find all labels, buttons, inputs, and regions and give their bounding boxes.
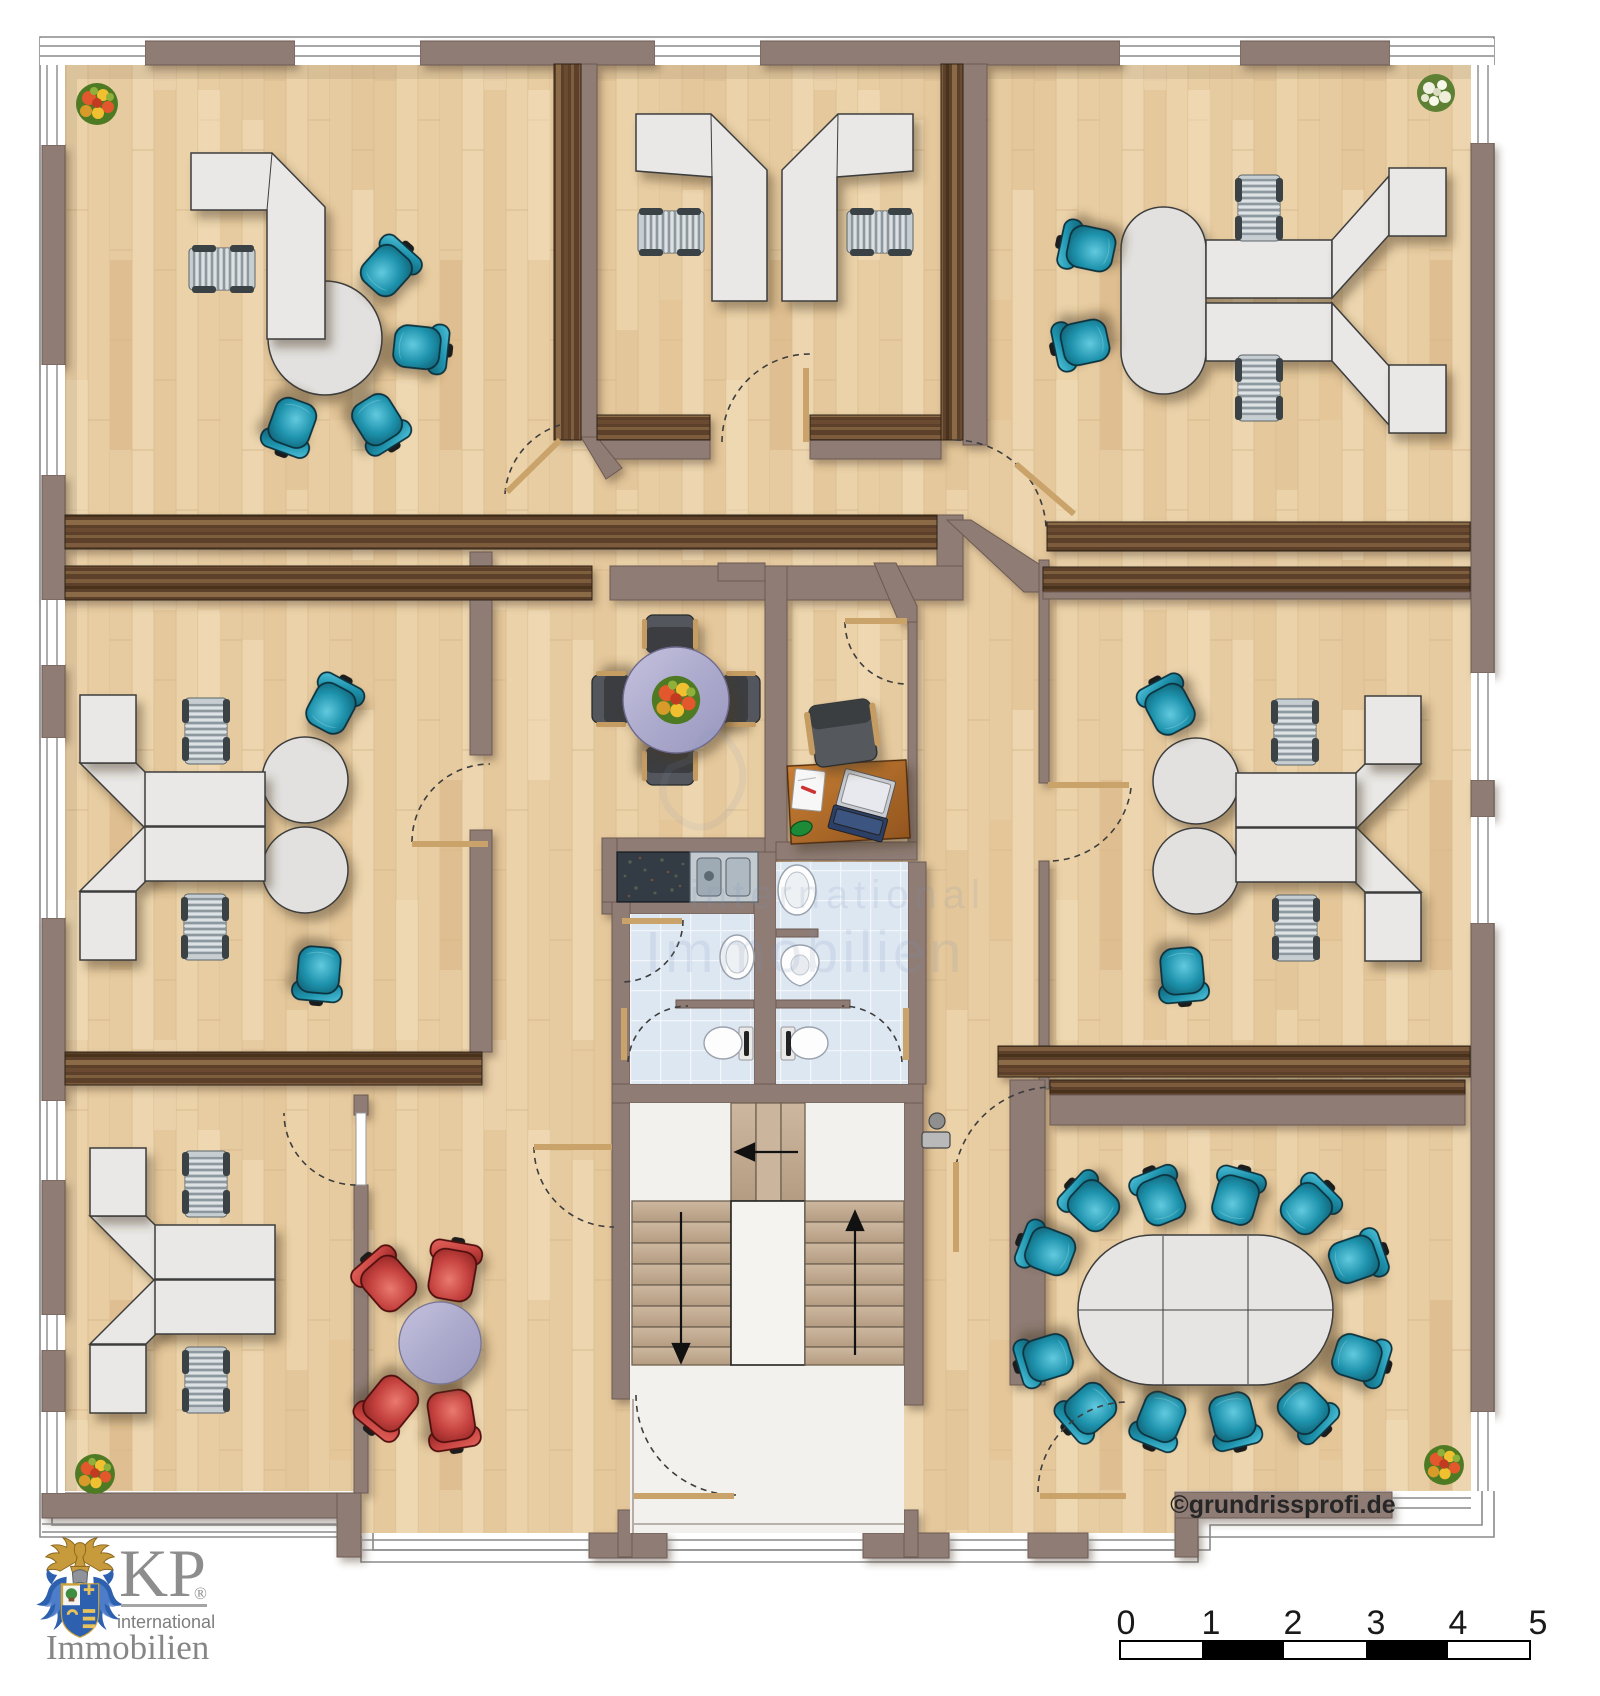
svg-text:®: ®: [194, 1584, 207, 1603]
svg-text:Immobilien: Immobilien: [46, 1628, 209, 1667]
svg-text:©grundrissprofi.de: ©grundrissprofi.de: [1170, 1491, 1395, 1519]
svg-text:2: 2: [1284, 1604, 1303, 1642]
svg-text:KP: KP: [119, 1535, 206, 1611]
svg-text:0: 0: [1117, 1604, 1136, 1642]
svg-text:international: international: [690, 873, 986, 917]
svg-text:3: 3: [1367, 1604, 1386, 1642]
svg-text:Immobilien: Immobilien: [645, 920, 965, 985]
svg-text:5: 5: [1529, 1604, 1548, 1642]
svg-text:1: 1: [1202, 1604, 1221, 1642]
svg-text:4: 4: [1449, 1604, 1468, 1642]
